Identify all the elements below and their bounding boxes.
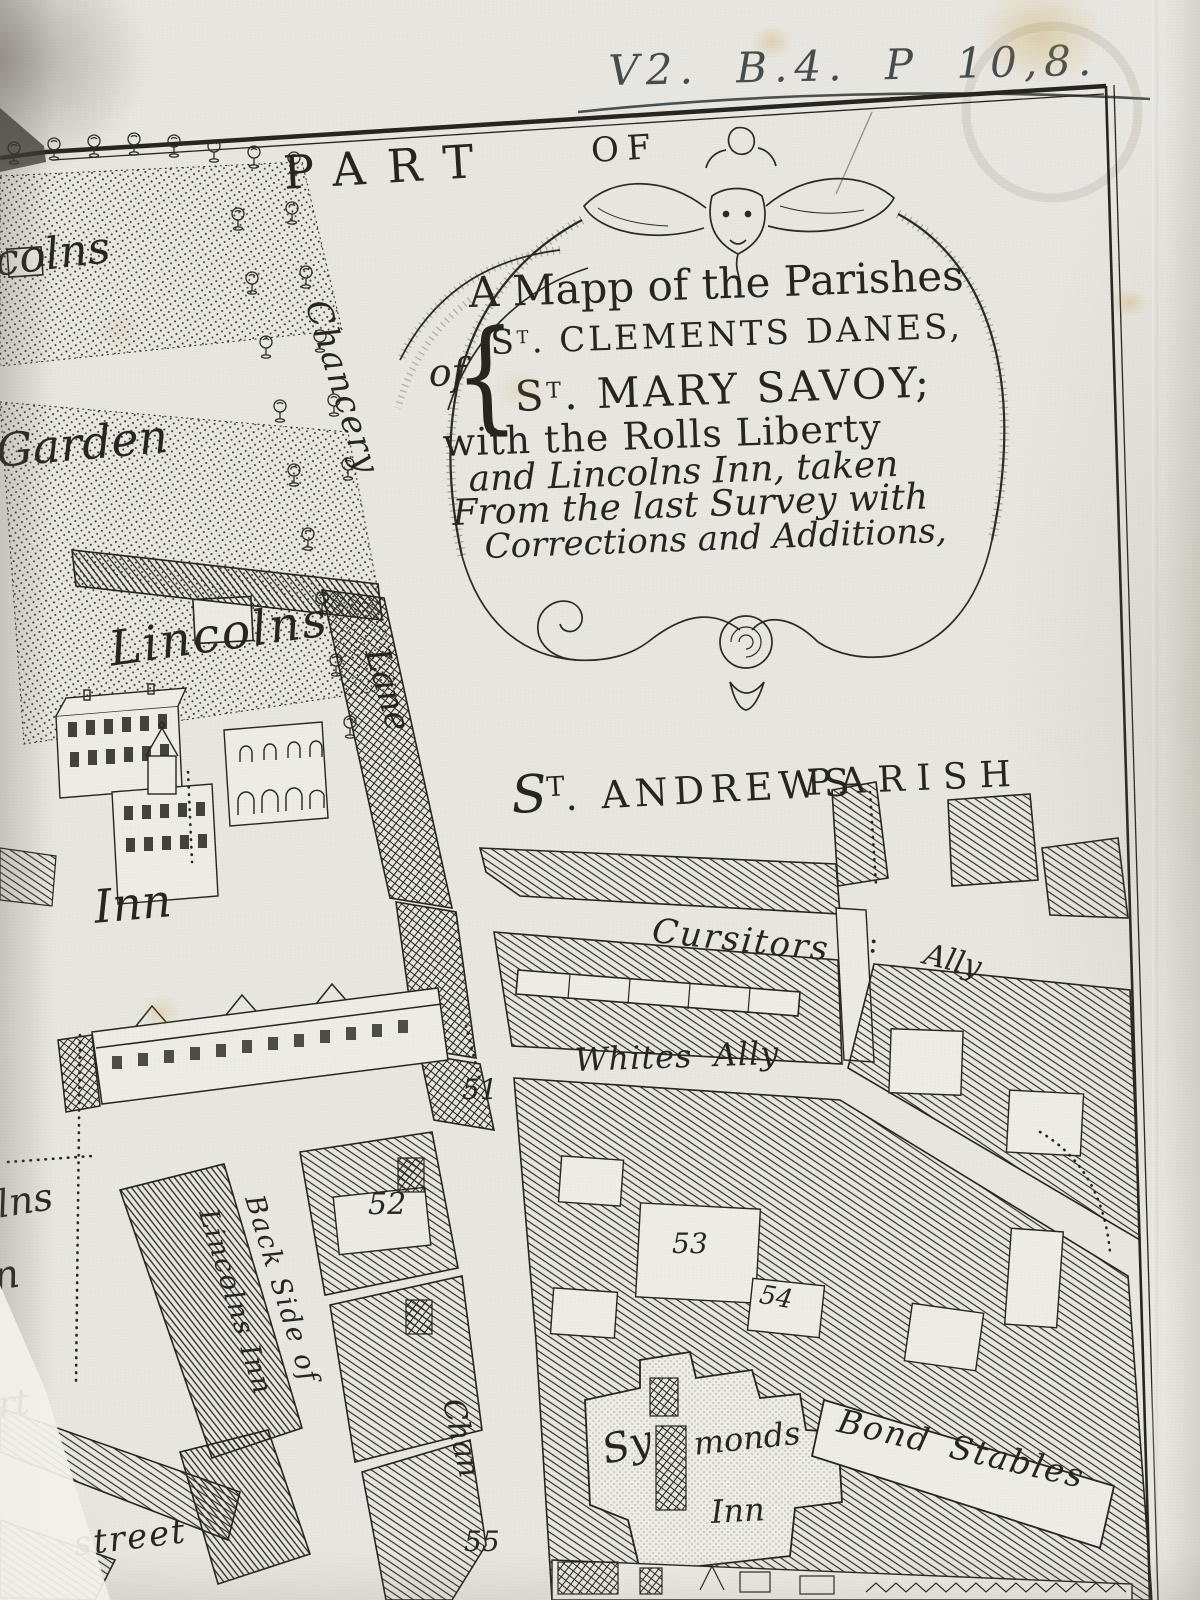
street-label-chancery: Chancery	[299, 296, 384, 479]
place-label-parish: PARISH	[806, 757, 1024, 802]
place-label-symonds-sy: Sy	[598, 1420, 656, 1471]
shelf-mark-handwritten: V2. B.4. P 10,8.	[608, 40, 1099, 92]
plot-number-51: 51	[462, 1076, 498, 1104]
label-of: OF	[590, 130, 659, 168]
street-label-cursitors-ally: Ally	[921, 940, 984, 983]
partial-label-lns: lns	[0, 1177, 55, 1223]
place-label-st-andrews: ST. ANDREWS	[510, 752, 857, 822]
street-label-street: street	[72, 1514, 189, 1562]
plot-number-55: 55	[464, 1528, 500, 1556]
cartouche-st-clements: ST. CLEMENTS DANES,	[490, 310, 963, 360]
place-label-symonds-monds: monds	[692, 1417, 802, 1460]
partial-label-n: n	[0, 1254, 22, 1298]
place-label-inn: Inn	[92, 877, 173, 930]
label-part: PART	[282, 137, 497, 196]
place-label-symonds-inn: Inn	[710, 1493, 765, 1528]
street-label-cursitors: Cursitors	[650, 914, 831, 966]
street-label-cursitors-colon: :	[867, 928, 880, 959]
street-label-chan: Chan	[437, 1396, 484, 1480]
place-label-lincolns: Lincolns	[106, 595, 331, 673]
street-label-whites-ally: Whites Ally	[574, 1037, 780, 1076]
place-label-bond-stables: Bond Stables	[835, 1404, 1089, 1493]
plot-number-54: 54	[757, 1282, 794, 1313]
place-label-garden: Garden	[0, 413, 170, 474]
plot-number-53: 53	[672, 1230, 708, 1258]
cartouche-title-line1: A Mapp of the Parishes	[468, 255, 964, 314]
partial-label-rt: rt	[0, 1385, 31, 1424]
antique-map-photo: V2. B.4. P 10,8. PART OF A Mapp of the P…	[0, 0, 1200, 1600]
map-labels: V2. B.4. P 10,8. PART OF A Mapp of the P…	[0, 0, 1200, 1600]
street-label-lane: Lane	[359, 644, 415, 735]
plot-number-52: 52	[368, 1190, 406, 1220]
partial-label-colns: colns	[0, 226, 113, 284]
